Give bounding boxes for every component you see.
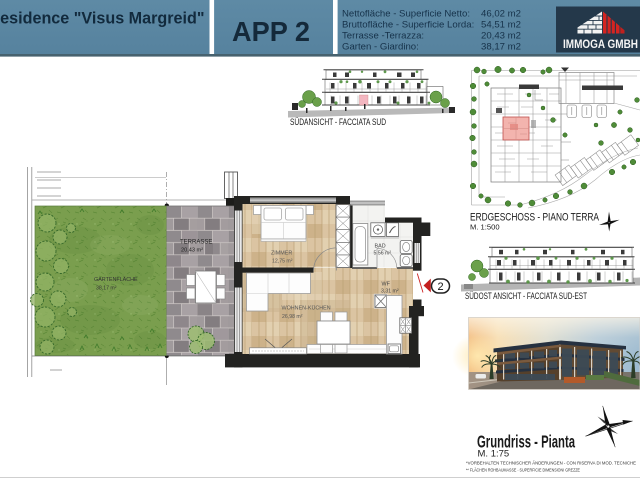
svg-text:APP 2: APP 2	[232, 16, 310, 47]
svg-text:WF: WF	[382, 282, 391, 288]
svg-text:TERRASSE: TERRASSE	[180, 240, 212, 246]
svg-text:20,43 m²: 20,43 m²	[181, 248, 203, 254]
svg-text:Bruttofläche - Superficie Lord: Bruttofläche - Superficie Lorda:	[342, 20, 474, 31]
svg-text:Residence "Visus Margreid": Residence "Visus Margreid"	[0, 9, 205, 28]
svg-text:M. 1:75: M. 1:75	[478, 449, 510, 460]
svg-text:3,31 m²: 3,31 m²	[381, 289, 399, 295]
svg-text:20,43 m2: 20,43 m2	[481, 31, 521, 42]
svg-text:IMMOGA GMBH: IMMOGA GMBH	[563, 37, 638, 51]
svg-text:26,98 m²: 26,98 m²	[282, 314, 303, 320]
svg-text:46,02 m2: 46,02 m2	[481, 9, 521, 20]
svg-text:38,17 m²: 38,17 m²	[96, 286, 117, 292]
svg-text:SÜDOST ANSICHT - FACCIATA SUD-: SÜDOST ANSICHT - FACCIATA SUD-EST	[465, 291, 587, 301]
svg-text:5,56 m²: 5,56 m²	[374, 251, 392, 257]
svg-text:2: 2	[438, 281, 444, 293]
svg-text:38,17 m2: 38,17 m2	[481, 42, 521, 53]
svg-text:54,51 m2: 54,51 m2	[481, 20, 521, 31]
svg-text:M. 1:500: M. 1:500	[470, 223, 500, 232]
svg-text:12,75 m²: 12,75 m²	[272, 259, 293, 265]
svg-text:ZIMMER: ZIMMER	[271, 251, 292, 257]
svg-text:*VORBEHALTEN TECHNISCHER ÄNDER: *VORBEHALTEN TECHNISCHER ÄNDERUNGEN - CO…	[466, 460, 636, 467]
svg-text:GARTENFLÄCHE: GARTENFLÄCHE	[94, 276, 138, 283]
svg-text:WOHNEN-KÜCHEN: WOHNEN-KÜCHEN	[282, 305, 331, 312]
svg-text:Terrasse -Terrazza:: Terrasse -Terrazza:	[342, 31, 424, 42]
svg-text:Nettofläche - Superficie Netto: Nettofläche - Superficie Netto:	[342, 9, 470, 20]
svg-text:** FLÄCHEN ROHBAUMASSE - SUPER: ** FLÄCHEN ROHBAUMASSE - SUPERFICIE DIME…	[466, 467, 580, 474]
svg-text:Garten - Giardino:: Garten - Giardino:	[342, 42, 419, 53]
svg-text:SÜDANSICHT - FACCIATA SUD: SÜDANSICHT - FACCIATA SUD	[290, 117, 386, 127]
